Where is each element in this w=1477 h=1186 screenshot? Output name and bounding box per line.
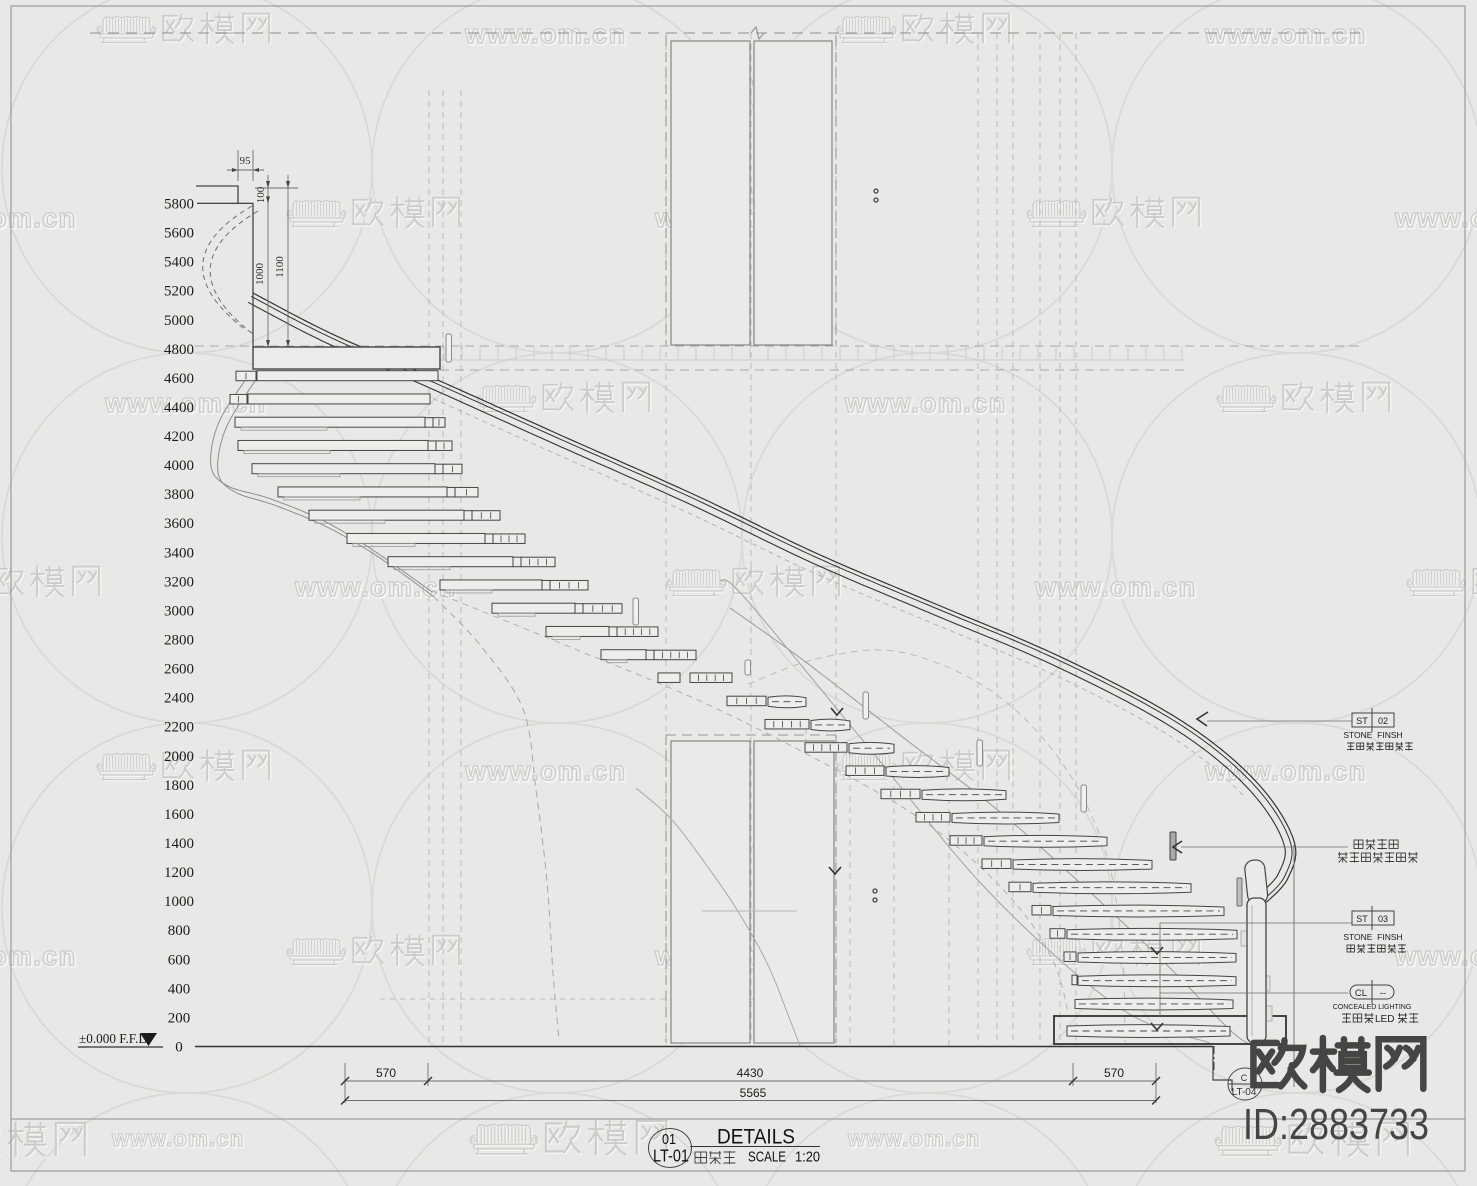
svg-text:5565: 5565	[740, 1086, 767, 1100]
svg-text:3000: 3000	[164, 604, 194, 620]
svg-text:1100: 1100	[274, 256, 286, 278]
svg-text:4400: 4400	[164, 400, 194, 416]
svg-text:www.om.cn: www.om.cn	[294, 572, 457, 602]
svg-text:STONE FINSH: STONE FINSH	[1343, 932, 1402, 942]
svg-text:4200: 4200	[164, 429, 194, 445]
svg-text:95: 95	[240, 155, 252, 167]
svg-text:100: 100	[255, 186, 267, 203]
svg-text:LT-01: LT-01	[653, 1146, 689, 1166]
svg-text:1400: 1400	[164, 836, 194, 852]
svg-text:www.om.cn: www.om.cn	[1204, 19, 1367, 49]
svg-text:02: 02	[1378, 716, 1388, 726]
svg-text:3600: 3600	[164, 516, 194, 532]
svg-text:5200: 5200	[164, 284, 194, 300]
svg-text:ST: ST	[1356, 716, 1368, 726]
svg-text:0: 0	[175, 1040, 183, 1056]
svg-text:LT-04: LT-04	[1232, 1087, 1257, 1098]
svg-text:www.om.cn: www.om.cn	[464, 19, 627, 49]
svg-text:5600: 5600	[164, 226, 194, 242]
svg-text:400: 400	[168, 981, 191, 997]
svg-text:www.om.cn: www.om.cn	[844, 388, 1007, 418]
svg-text:03: 03	[1378, 914, 1388, 924]
svg-text:--: --	[1380, 988, 1386, 999]
svg-text:2000: 2000	[164, 749, 194, 765]
svg-text:C: C	[1241, 1073, 1248, 1083]
svg-text:1:20: 1:20	[795, 1150, 820, 1166]
svg-text:www.om.cn: www.om.cn	[1034, 572, 1197, 602]
svg-text:3800: 3800	[164, 487, 194, 503]
svg-text:1000: 1000	[164, 894, 194, 910]
svg-text:1200: 1200	[164, 865, 194, 881]
svg-text:600: 600	[168, 952, 191, 968]
svg-text:800: 800	[168, 923, 191, 939]
svg-text:3400: 3400	[164, 545, 194, 561]
svg-text:3200: 3200	[164, 574, 194, 590]
svg-text:±0.000 F.F.L: ±0.000 F.F.L	[79, 1031, 146, 1046]
svg-text:5000: 5000	[164, 313, 194, 329]
svg-text:1600: 1600	[164, 807, 194, 823]
svg-text:www.om.cn: www.om.cn	[847, 1126, 980, 1151]
svg-text:2600: 2600	[164, 662, 194, 678]
svg-text:STONE FINSH: STONE FINSH	[1343, 730, 1402, 740]
svg-text:2400: 2400	[164, 691, 194, 707]
svg-text:www.om.cn: www.om.cn	[111, 1126, 244, 1151]
svg-text:5400: 5400	[164, 255, 194, 271]
svg-text:570: 570	[1104, 1066, 1124, 1080]
svg-text:200: 200	[168, 1010, 191, 1026]
svg-text:DETAILS: DETAILS	[717, 1126, 795, 1149]
svg-text:1000: 1000	[254, 263, 266, 286]
svg-text:2200: 2200	[164, 720, 194, 736]
svg-text:4600: 4600	[164, 371, 194, 387]
svg-text:ID:2883733: ID:2883733	[1243, 1100, 1429, 1149]
svg-text:1800: 1800	[164, 778, 194, 794]
svg-text:ST: ST	[1356, 914, 1368, 924]
svg-text:4000: 4000	[164, 458, 194, 474]
svg-text:CONCEALED LIGHTING: CONCEALED LIGHTING	[1333, 1004, 1412, 1011]
svg-text:www.om.cn: www.om.cn	[464, 756, 627, 786]
svg-text:2800: 2800	[164, 633, 194, 649]
svg-text:SCALE: SCALE	[748, 1150, 786, 1166]
svg-text:CL: CL	[1355, 988, 1367, 999]
svg-text:4800: 4800	[164, 342, 194, 358]
svg-text:5800: 5800	[164, 197, 194, 213]
svg-text:570: 570	[376, 1066, 396, 1080]
svg-text:4430: 4430	[737, 1066, 764, 1080]
svg-text:LED: LED	[1375, 1014, 1394, 1025]
